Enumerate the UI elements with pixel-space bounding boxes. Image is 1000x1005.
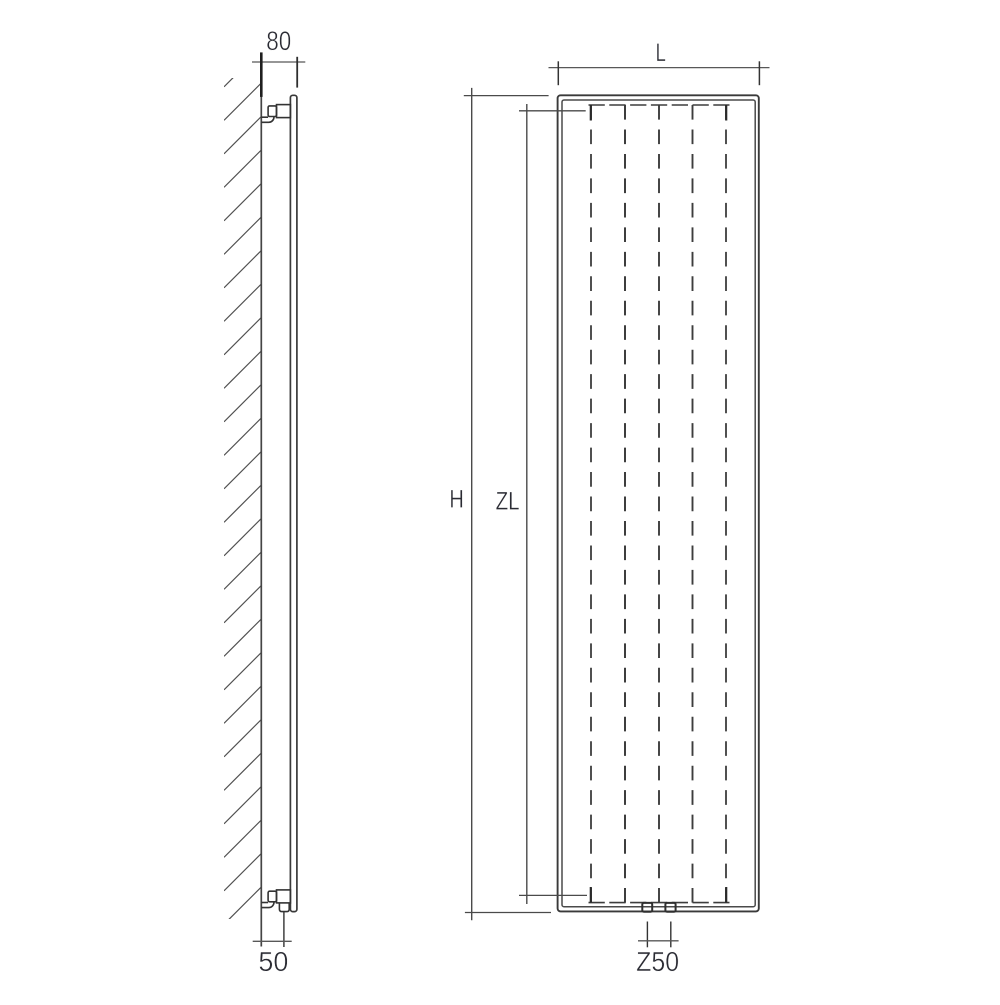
svg-text:Z50: Z50 <box>636 946 679 977</box>
svg-text:50: 50 <box>258 946 288 977</box>
svg-text:ZL: ZL <box>496 488 520 515</box>
svg-text:L: L <box>656 40 667 67</box>
svg-text:H: H <box>449 487 464 514</box>
svg-text:80: 80 <box>266 26 291 56</box>
